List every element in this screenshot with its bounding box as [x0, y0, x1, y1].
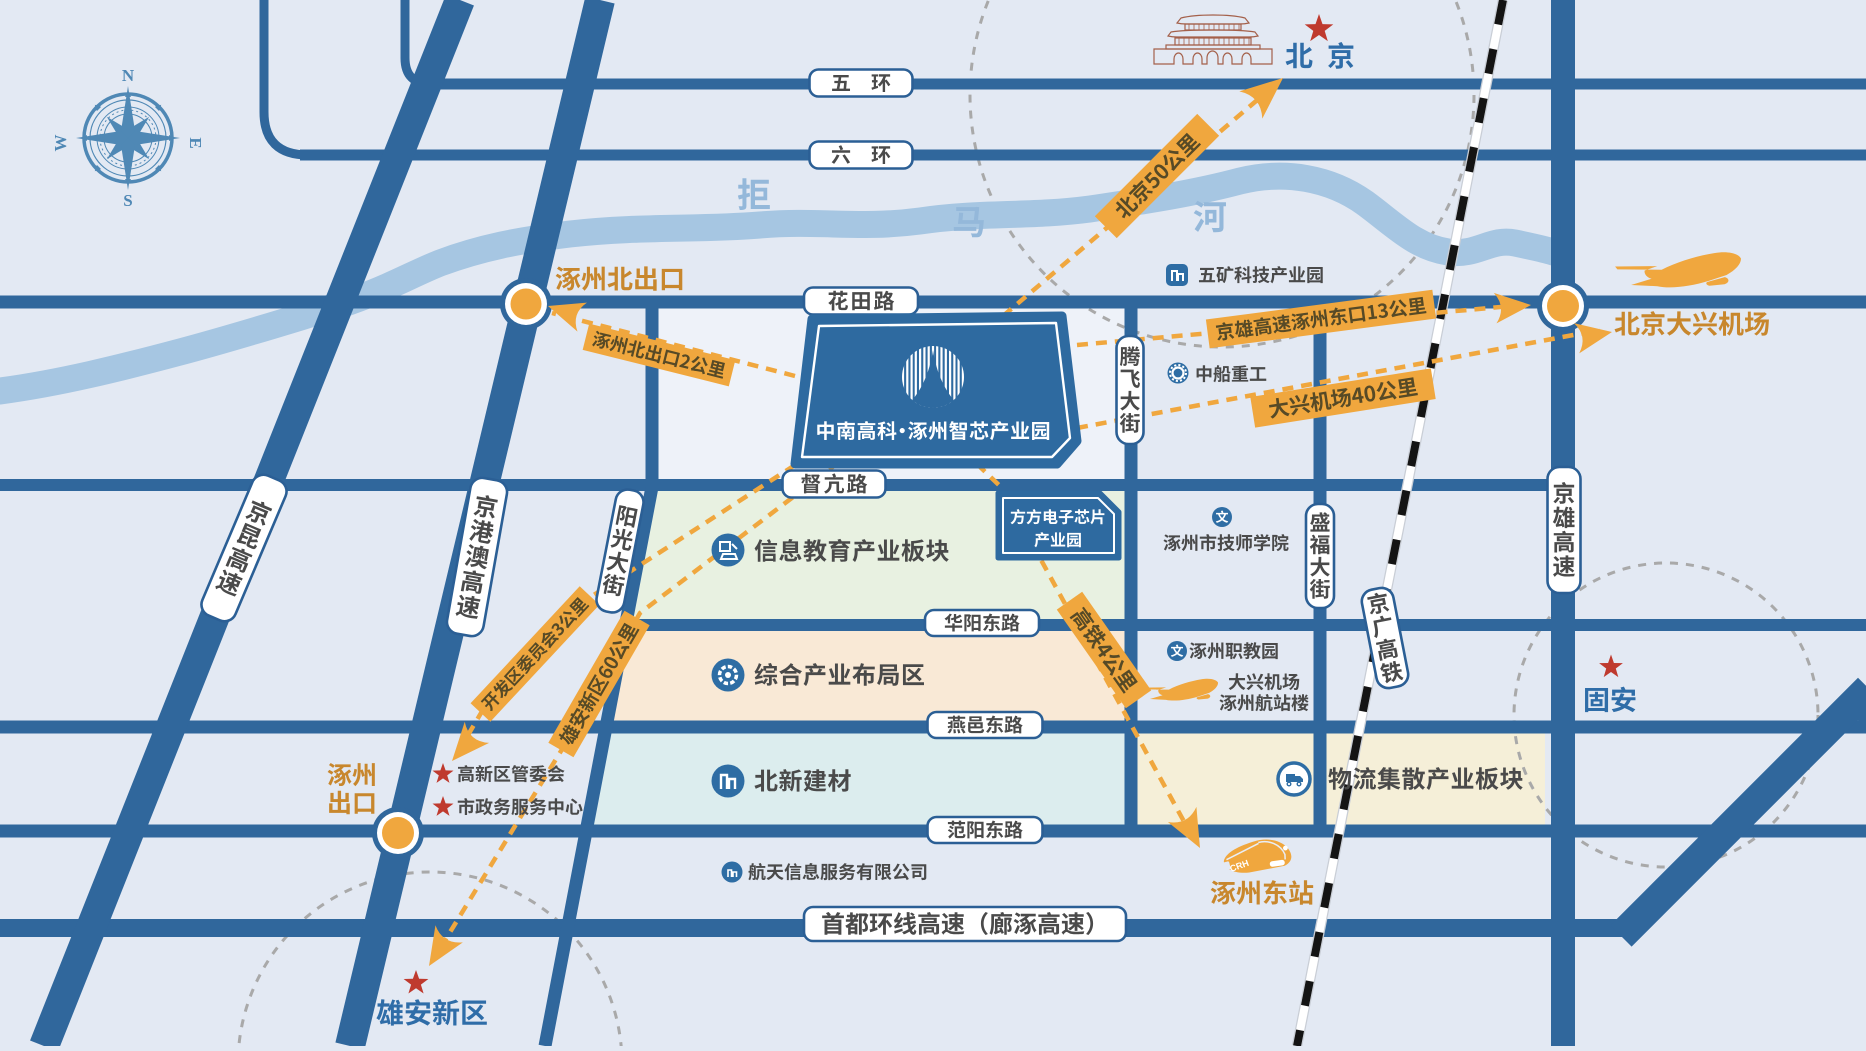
- svg-text:N: N: [122, 66, 135, 85]
- svg-text:S: S: [123, 191, 132, 210]
- svg-text:W: W: [51, 135, 70, 152]
- svg-text:E: E: [186, 137, 205, 148]
